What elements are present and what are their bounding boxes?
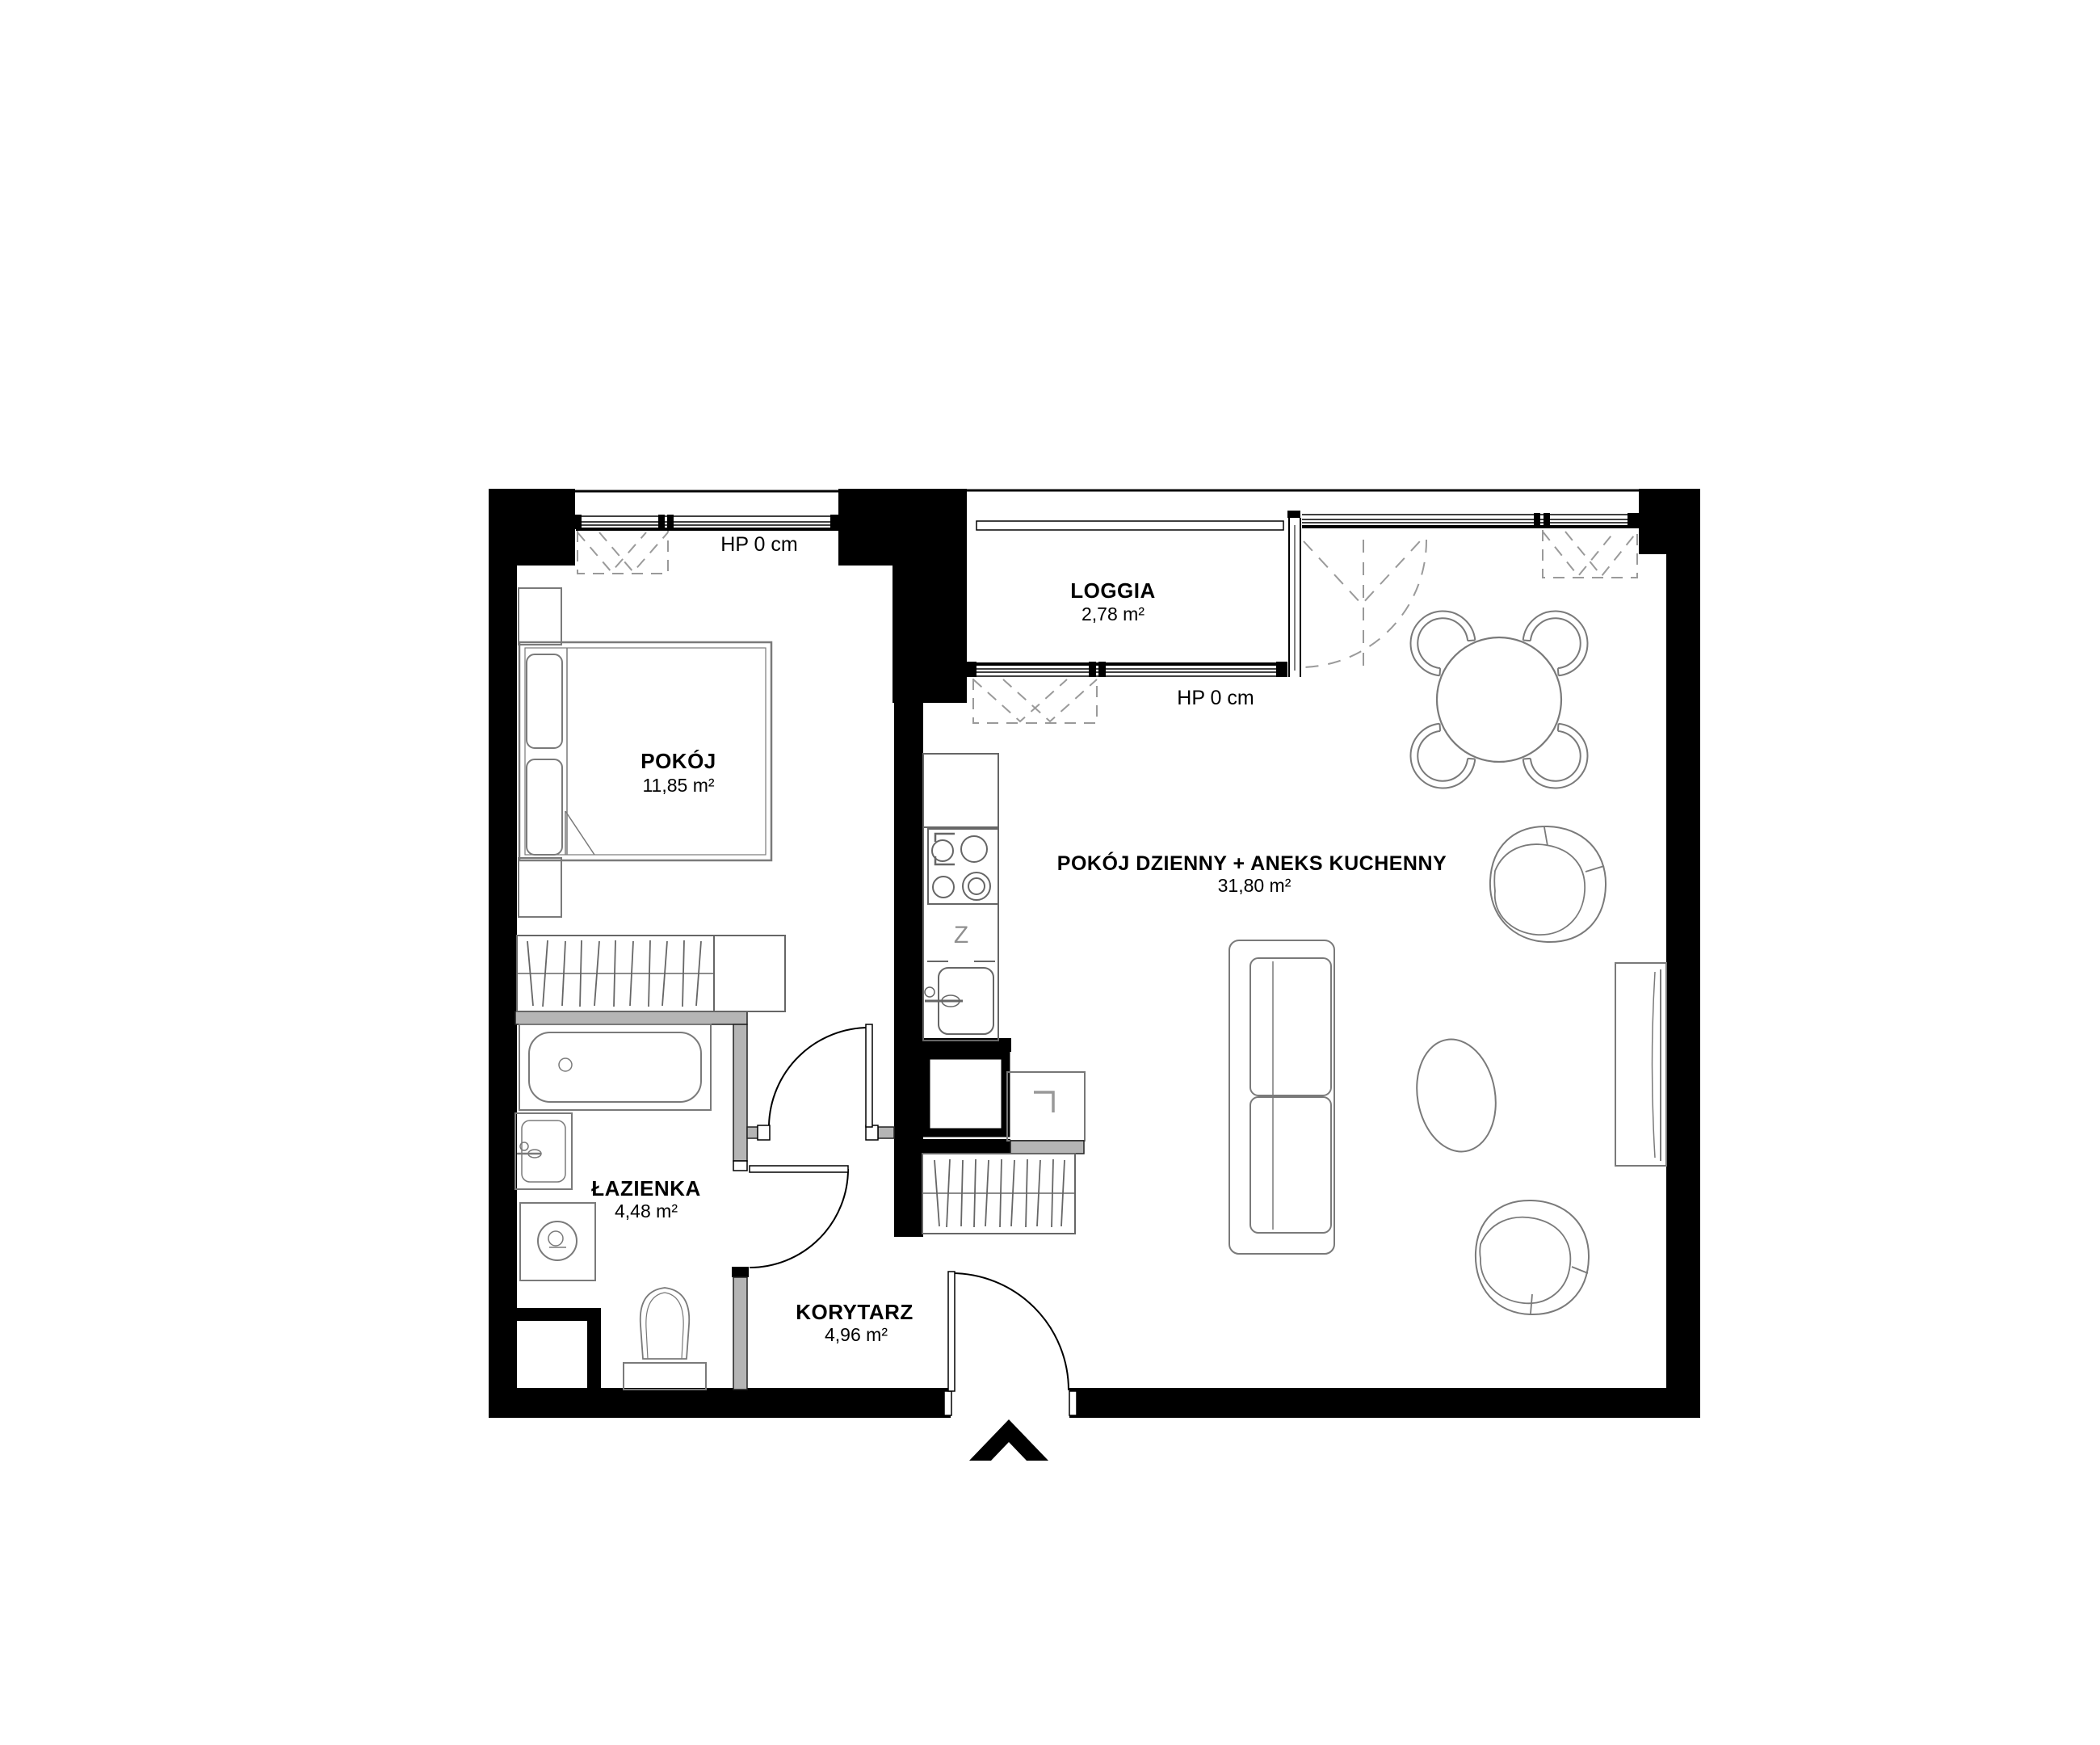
dining-chair — [1518, 598, 1601, 681]
wall-bottom-left — [489, 1388, 951, 1418]
jamb-bath-door — [733, 1161, 747, 1171]
bedroom-furniture — [517, 588, 785, 1011]
labels: HP 0 cm LOGGIA 2,78 m² HP 0 cm POKÓJ 11,… — [591, 533, 1447, 1345]
label-lazienka-area: 4,48 m² — [615, 1200, 678, 1221]
kitchen-shaft — [926, 1055, 1006, 1133]
bedroom-window-casement — [577, 531, 668, 574]
window-opening-dashes — [577, 530, 1637, 723]
bedroom-wardrobe — [517, 936, 785, 1011]
dining-chair — [1518, 718, 1601, 801]
bathroom-fixtures — [515, 1024, 711, 1390]
label-loggia-area: 2,78 m² — [1081, 603, 1144, 624]
bathtub — [519, 1024, 711, 1110]
armchair-top — [1490, 826, 1606, 942]
boiler-box — [1007, 1072, 1085, 1141]
kitchen-sink — [925, 968, 993, 1034]
nightstand-bottom — [519, 858, 561, 917]
partition-bath-corridor-lower — [733, 1277, 747, 1390]
label-korytarz-area: 4,96 m² — [825, 1324, 888, 1345]
pouf — [1409, 1033, 1505, 1158]
wall-corner-top-left — [489, 489, 575, 566]
label-lazienka-name: ŁAZIENKA — [591, 1176, 700, 1200]
kitchen-window-casement — [973, 679, 1097, 723]
label-loggia-name: LOGGIA — [1070, 578, 1156, 603]
balcony-door-swing — [1302, 540, 1426, 667]
jamb-entry-right — [1069, 1391, 1077, 1415]
wall-cap-bath-door — [732, 1267, 749, 1277]
sofa — [1229, 940, 1334, 1254]
floor-plan: Z — [0, 0, 2100, 1745]
loggia-bottom-window — [967, 662, 1287, 677]
dining-table — [1397, 598, 1601, 801]
wall-bath-shaft-band — [493, 1308, 601, 1321]
wall-loggia-left-block — [892, 564, 967, 703]
label-living-area: 31,80 m² — [1218, 875, 1291, 896]
washing-machine — [520, 1203, 595, 1280]
wall-corner-top-right — [1639, 489, 1700, 554]
wall-top-center-block — [838, 489, 967, 566]
bathroom-door — [750, 1166, 848, 1268]
wall-band-over-wardrobe — [921, 1139, 1010, 1154]
kitchen — [922, 754, 1085, 1234]
nightstand-top — [519, 588, 561, 645]
living-furniture — [1229, 598, 1666, 1314]
dining-chair — [1397, 598, 1480, 681]
armchair-bottom — [1476, 1200, 1589, 1314]
entry-door — [948, 1272, 1069, 1391]
jamb-bedroom-door-left — [758, 1125, 770, 1140]
entrance-arrow-icon — [969, 1419, 1048, 1461]
tv-cabinet — [1615, 963, 1666, 1166]
walls — [489, 489, 1700, 1418]
label-living-name: POKÓJ DZIENNY + ANEKS KUCHENNY — [1057, 851, 1447, 875]
wall-bottom-right — [1069, 1388, 1700, 1418]
toilet — [624, 1288, 706, 1390]
jamb-entry-left — [944, 1391, 951, 1415]
cooktop — [928, 829, 998, 904]
balcony-door-frame — [1289, 518, 1300, 677]
dining-chair — [1397, 718, 1480, 801]
floor-plan-page: Z — [0, 0, 2100, 1745]
bedroom-window — [574, 491, 838, 529]
wall-right — [1666, 553, 1700, 1418]
loggia-parapet — [976, 521, 1283, 530]
kitchen-appliance-symbol: Z — [954, 922, 968, 948]
corridor-wardrobe — [922, 1154, 1075, 1234]
wall-kitchen-separator — [894, 701, 923, 1237]
washbasin — [515, 1113, 572, 1189]
wardrobe-top-gray — [1010, 1141, 1084, 1154]
living-window-casement — [1543, 530, 1637, 578]
bed-sheet-fold — [565, 811, 594, 855]
partition-bath-corridor-upper — [733, 1024, 747, 1161]
label-pokoj-name: POKÓJ — [640, 749, 716, 773]
label-pokoj-area: 11,85 m² — [642, 775, 714, 796]
bedroom-door — [769, 1024, 872, 1127]
partition-bedroom-door-stub-right — [878, 1127, 894, 1138]
kitchen-counter — [923, 754, 998, 1041]
label-korytarz-name: KORYTARZ — [796, 1300, 913, 1324]
wall-bath-shaft-strip — [587, 1320, 601, 1390]
label-hp-loggia: HP 0 cm — [1177, 687, 1254, 709]
label-hp-bedroom: HP 0 cm — [720, 533, 797, 556]
wall-left — [489, 489, 517, 1418]
partition-bedroom-bath — [515, 1011, 747, 1024]
living-top-window — [1287, 511, 1639, 528]
